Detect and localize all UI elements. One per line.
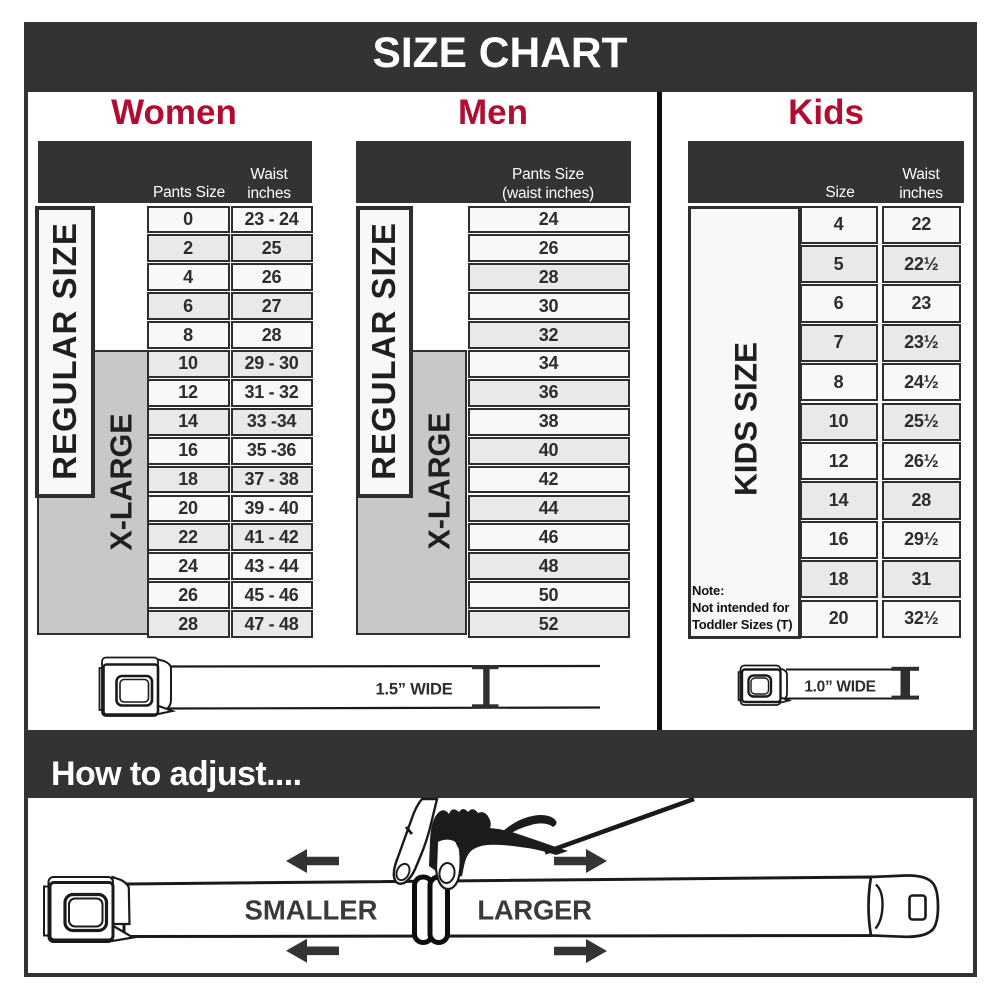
svg-text:LARGER: LARGER — [477, 895, 592, 926]
svg-text:SMALLER: SMALLER — [245, 895, 378, 926]
